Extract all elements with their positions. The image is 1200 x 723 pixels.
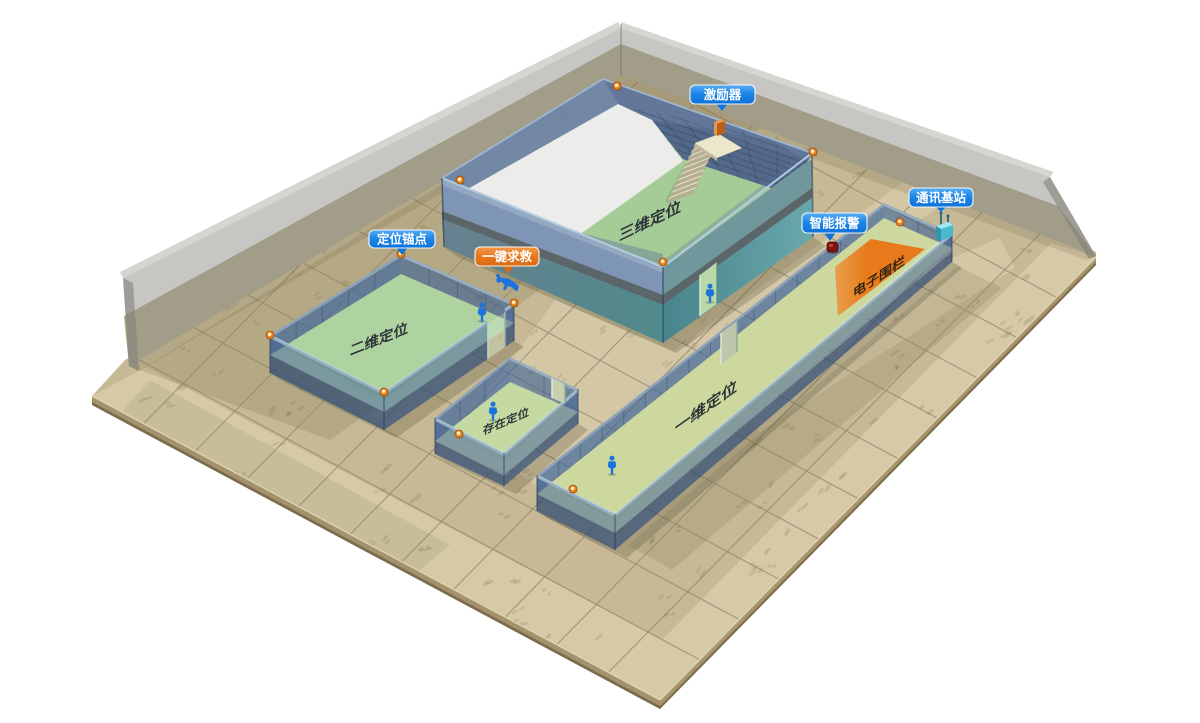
svg-text:智能报警: 智能报警 [808, 216, 860, 231]
svg-text:定位锚点: 定位锚点 [376, 232, 428, 247]
svg-text:通讯基站: 通讯基站 [916, 190, 967, 205]
svg-text:激励器: 激励器 [704, 87, 742, 102]
svg-text:一键求救: 一键求救 [482, 249, 533, 264]
